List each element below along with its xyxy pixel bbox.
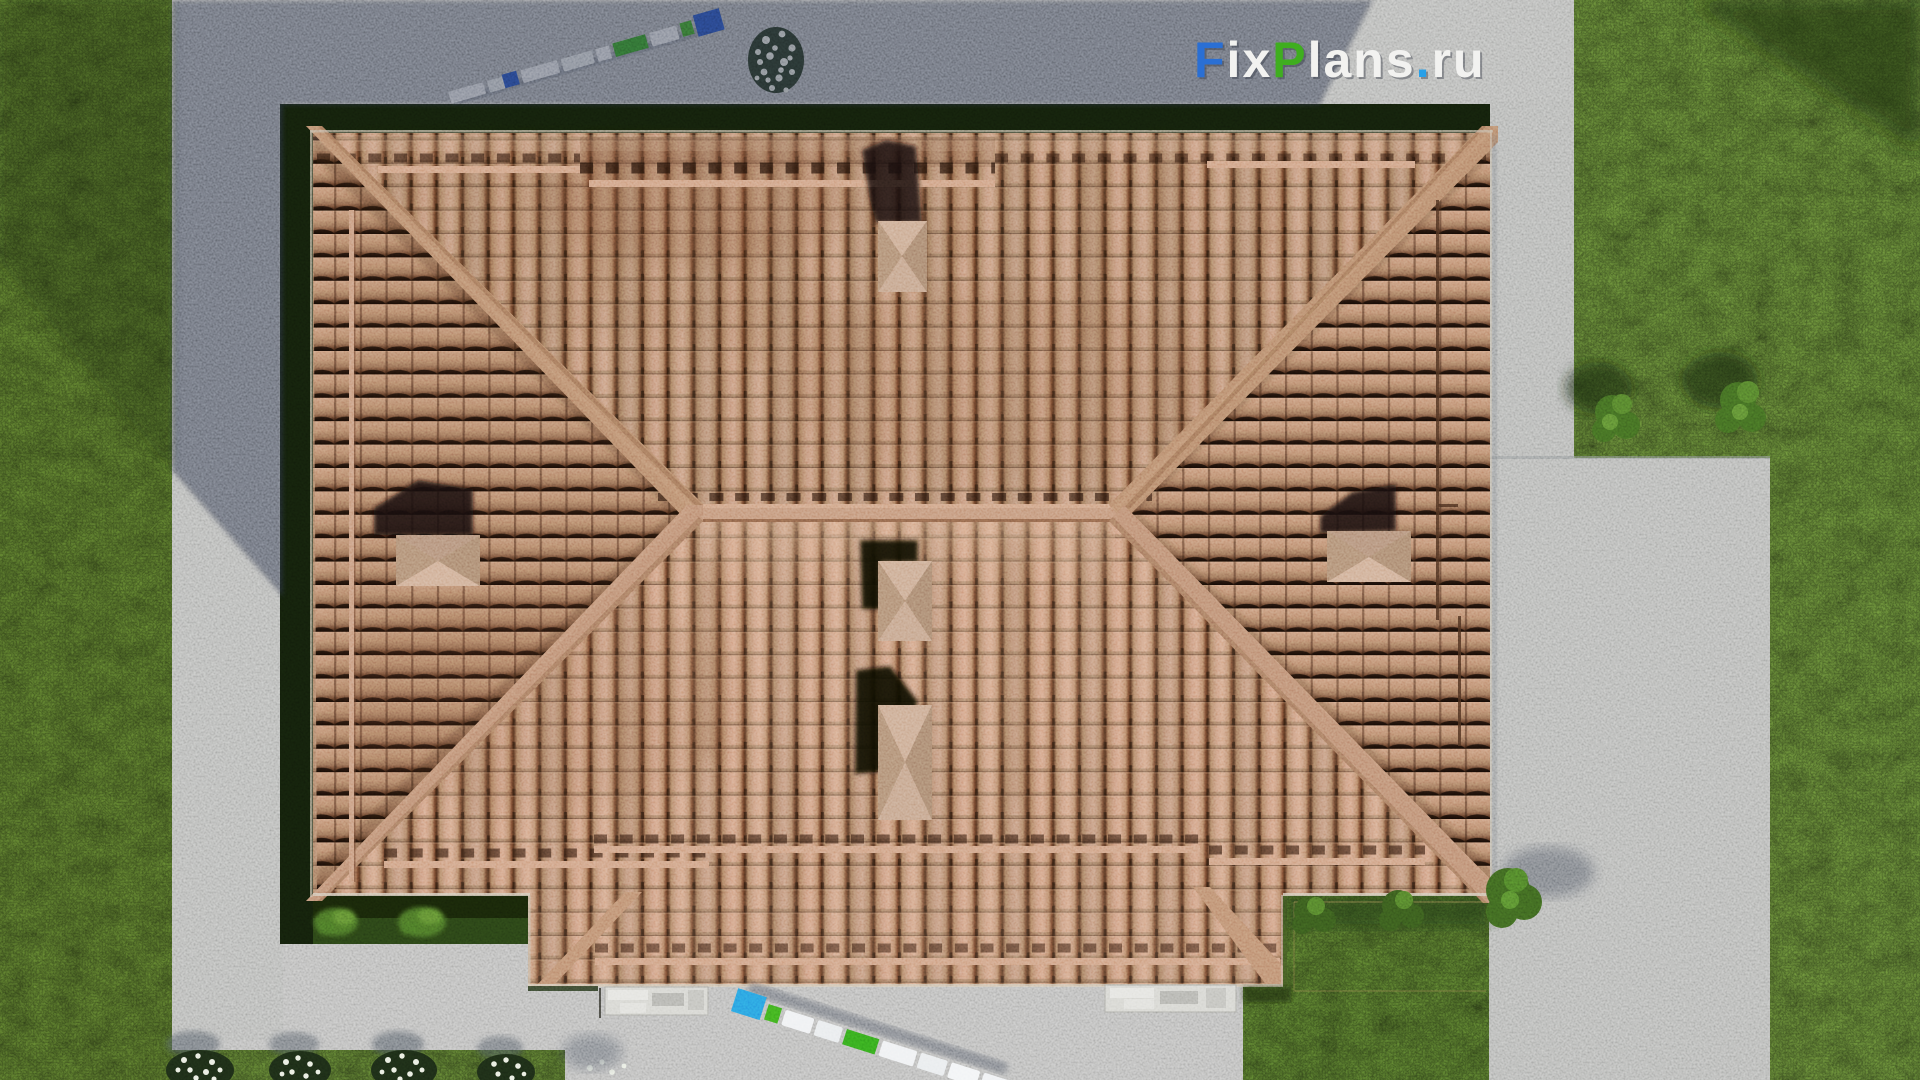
svg-text:FixPlans.ru: FixPlans.ru <box>1194 32 1486 88</box>
